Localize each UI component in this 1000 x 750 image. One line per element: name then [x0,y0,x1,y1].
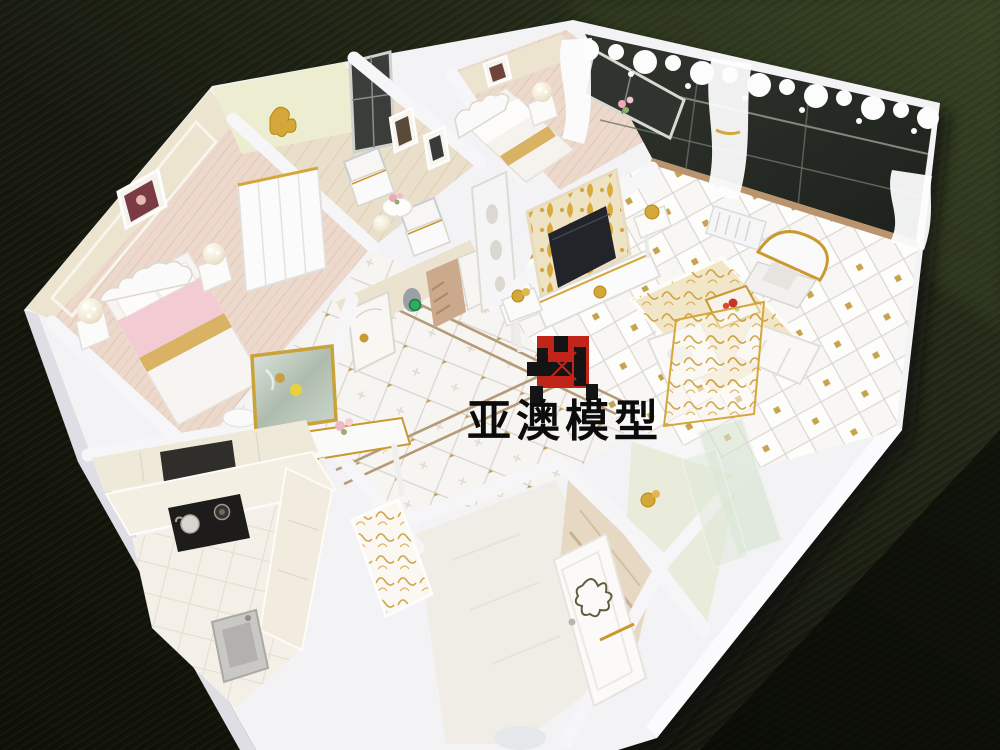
lamp-reflection [290,384,302,396]
pearl-ball-lamp [77,298,103,324]
faucet [245,615,251,621]
tied-curtain-right [890,170,932,250]
scene-svg: 亚澳模型 [0,0,1000,750]
red-flowers [729,299,738,308]
door-handle [569,619,576,626]
bath-fixture [494,726,546,750]
pearl-ball-lamp [203,243,225,265]
pearl-ball [373,215,391,233]
gold-ornament [645,205,659,219]
photo-of-model: 亚澳模型 [0,0,1000,750]
gold-reflection [275,373,285,383]
gold-framed-mirror [252,346,336,432]
jade-ornament [410,300,421,311]
gold-filigree-screen [664,302,764,426]
wall-frame-2 [424,127,449,169]
watermark-text: 亚澳模型 [467,396,663,447]
gold-vase [594,286,606,298]
picture-figure [136,195,146,205]
pearl-ball-lamp [532,82,552,102]
door-gold-crest [360,334,369,343]
kettle [181,515,199,533]
bed-bench [223,409,257,427]
